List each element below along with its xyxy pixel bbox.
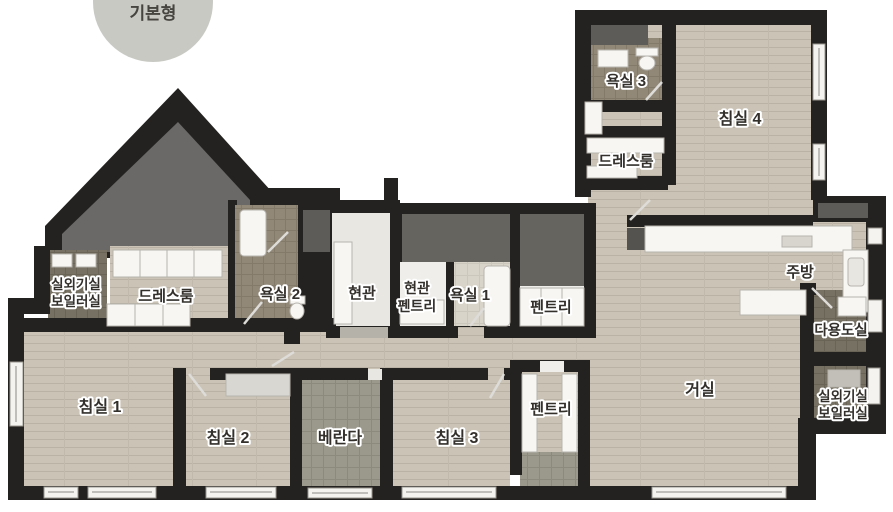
duct-void	[303, 210, 330, 252]
label-veranda: 베란다	[318, 429, 362, 447]
bath3-toilet-tank	[636, 48, 658, 56]
utility-washer	[838, 297, 866, 316]
label-outdoor-boiler-left-1: 실외기실	[51, 276, 101, 292]
kitchen-stove	[782, 236, 812, 247]
label-dressroom-left: 드레스룸	[138, 288, 193, 305]
label-outdoor-boiler-right-2: 보일러실	[818, 406, 868, 421]
label-bedroom3: 침실 3	[436, 428, 479, 447]
bath2-tub	[240, 210, 266, 256]
entrance-closet	[334, 242, 352, 324]
kitchen-island	[740, 290, 806, 315]
label-entrance-pantry-1: 현관	[404, 280, 430, 296]
dressroom-left-closet-bottom	[107, 304, 190, 326]
bedroom2-closet	[226, 374, 290, 396]
label-utility: 다용도실	[814, 322, 867, 339]
kitchen-sink	[848, 258, 864, 286]
living-floor	[588, 227, 812, 488]
label-pantry-top: 펜트리	[530, 299, 571, 316]
label-bath2: 욕실 2	[260, 286, 300, 303]
type-badge-label: 기본형	[130, 3, 177, 23]
void-above-pantry	[520, 214, 588, 286]
bath2-toilet	[290, 303, 304, 319]
label-bedroom1: 침실 1	[79, 397, 122, 416]
bath3-sink	[598, 50, 628, 67]
bath3-hall-closet	[585, 102, 602, 134]
boiler-left-unit2	[76, 254, 96, 267]
label-entrance-pantry-2: 펜트리	[398, 298, 437, 314]
label-bedroom2: 침실 2	[207, 428, 250, 447]
label-pantry-bottom: 펜트리	[530, 401, 571, 418]
label-living: 거실	[685, 381, 714, 399]
void-above-bath1	[402, 214, 512, 262]
label-bedroom4: 침실 4	[719, 109, 762, 128]
dressroom-right-closet	[587, 138, 664, 153]
floor-plan-drawing: 기본형 실외기실 보일러실 드레스룸 욕실 2 현관 현관 펜트리 욕실 1 펜…	[0, 0, 893, 512]
label-bath1: 욕실 1	[450, 287, 490, 304]
floor-plan-page: 기본형 실외기실 보일러실 드레스룸 욕실 2 현관 현관 펜트리 욕실 1 펜…	[0, 0, 893, 512]
kitchen-counter	[645, 226, 852, 252]
label-outdoor-boiler-left-2: 보일러실	[51, 294, 101, 309]
pantry-bottom-tile	[520, 452, 580, 488]
bath3-toilet	[639, 56, 655, 70]
label-kitchen: 주방	[786, 263, 814, 281]
boiler-left-unit1	[52, 254, 72, 267]
label-entrance: 현관	[348, 285, 376, 302]
boiler-right-unit	[828, 370, 860, 387]
label-bath3: 욕실 3	[606, 73, 646, 90]
label-outdoor-boiler-right-1: 실외기실	[818, 388, 868, 404]
label-dressroom-right: 드레스룸	[598, 153, 653, 170]
fridge	[627, 228, 646, 250]
